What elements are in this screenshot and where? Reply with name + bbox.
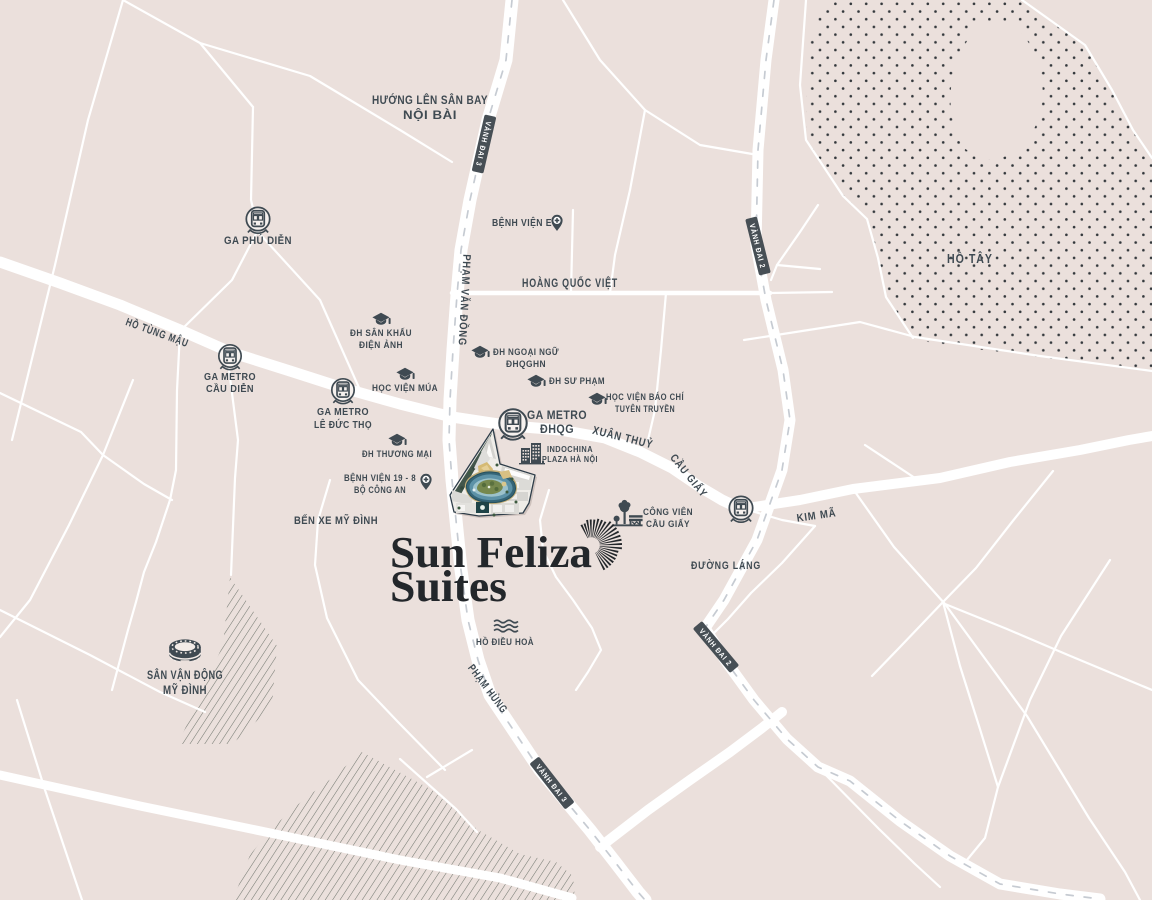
svg-text:ĐIỆN ẢNH: ĐIỆN ẢNH — [359, 339, 403, 351]
svg-text:BỆNH VIỆN 19 - 8: BỆNH VIỆN 19 - 8 — [344, 472, 416, 484]
svg-text:GA METRO: GA METRO — [317, 406, 369, 418]
svg-text:GA METRO: GA METRO — [204, 371, 256, 383]
svg-text:ĐƯỜNG LÁNG: ĐƯỜNG LÁNG — [691, 559, 761, 572]
svg-text:SÂN VẬN ĐỘNG: SÂN VẬN ĐỘNG — [147, 669, 223, 682]
svg-text:HỒ TÂY: HỒ TÂY — [947, 251, 993, 266]
svg-text:ĐH THƯƠNG MẠI: ĐH THƯƠNG MẠI — [362, 449, 432, 460]
svg-text:ĐHQGHN: ĐHQGHN — [506, 359, 546, 370]
svg-text:GA METRO: GA METRO — [527, 408, 587, 422]
svg-text:CẦU DIỄN: CẦU DIỄN — [206, 382, 254, 395]
svg-text:INDOCHINA: INDOCHINA — [547, 445, 593, 454]
svg-text:Suites: Suites — [390, 562, 507, 611]
svg-text:BỆNH VIỆN E: BỆNH VIỆN E — [492, 216, 552, 229]
svg-text:ĐHQG: ĐHQG — [540, 422, 574, 436]
svg-text:HOÀNG QUỐC VIỆT: HOÀNG QUỐC VIỆT — [522, 276, 618, 290]
svg-text:GA PHÚ DIỄN: GA PHÚ DIỄN — [224, 234, 292, 247]
svg-text:MỸ ĐÌNH: MỸ ĐÌNH — [163, 684, 207, 697]
svg-text:ĐH SÂN KHẤU: ĐH SÂN KHẤU — [350, 327, 412, 339]
svg-text:LÊ ĐỨC THỌ: LÊ ĐỨC THỌ — [314, 418, 372, 431]
svg-text:CẦU GIẤY: CẦU GIẤY — [646, 519, 690, 530]
svg-text:NỘI BÀI: NỘI BÀI — [403, 107, 457, 122]
svg-text:HƯỚNG LÊN SÂN BAY: HƯỚNG LÊN SÂN BAY — [372, 92, 488, 107]
svg-text:ĐH SƯ PHẠM: ĐH SƯ PHẠM — [549, 376, 605, 387]
svg-text:HỌC VIỆN BÁO CHÍ: HỌC VIỆN BÁO CHÍ — [606, 391, 684, 402]
svg-text:ĐH NGOẠI NGỮ: ĐH NGOẠI NGỮ — [493, 347, 559, 358]
svg-text:BỘ CÔNG AN: BỘ CÔNG AN — [354, 484, 406, 496]
svg-text:PLAZA HÀ NỘI: PLAZA HÀ NỘI — [542, 455, 598, 464]
svg-text:CÔNG VIÊN: CÔNG VIÊN — [643, 506, 693, 518]
svg-text:TUYÊN TRUYỀN: TUYÊN TRUYỀN — [615, 403, 675, 414]
svg-text:HỒ ĐIỀU HOÀ: HỒ ĐIỀU HOÀ — [476, 636, 534, 648]
svg-text:BẾN XE MỸ ĐÌNH: BẾN XE MỸ ĐÌNH — [294, 514, 378, 527]
svg-text:HỌC VIỆN MÚA: HỌC VIỆN MÚA — [372, 382, 438, 394]
